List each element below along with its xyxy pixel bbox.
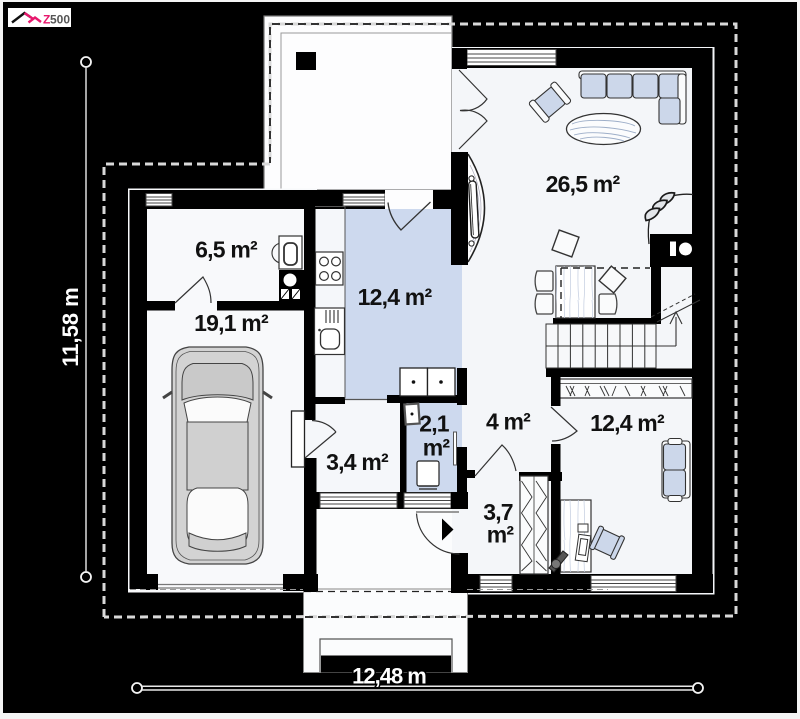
- svg-text:m²: m²: [423, 435, 451, 461]
- svg-text:12,4 m²: 12,4 m²: [358, 284, 433, 310]
- svg-text:12,4 m²: 12,4 m²: [590, 410, 665, 436]
- svg-text:4 m²: 4 m²: [486, 409, 531, 435]
- svg-text:500: 500: [50, 13, 70, 27]
- svg-text:2,1: 2,1: [419, 411, 450, 437]
- svg-text:3,4 m²: 3,4 m²: [326, 449, 389, 475]
- svg-text:11,58 m: 11,58 m: [58, 287, 83, 367]
- svg-text:19,1 m²: 19,1 m²: [194, 310, 269, 336]
- svg-text:26,5 m²: 26,5 m²: [546, 171, 621, 197]
- svg-text:m²: m²: [487, 522, 515, 548]
- svg-text:12,48 m: 12,48 m: [352, 664, 426, 689]
- svg-text:6,5 m²: 6,5 m²: [195, 237, 258, 263]
